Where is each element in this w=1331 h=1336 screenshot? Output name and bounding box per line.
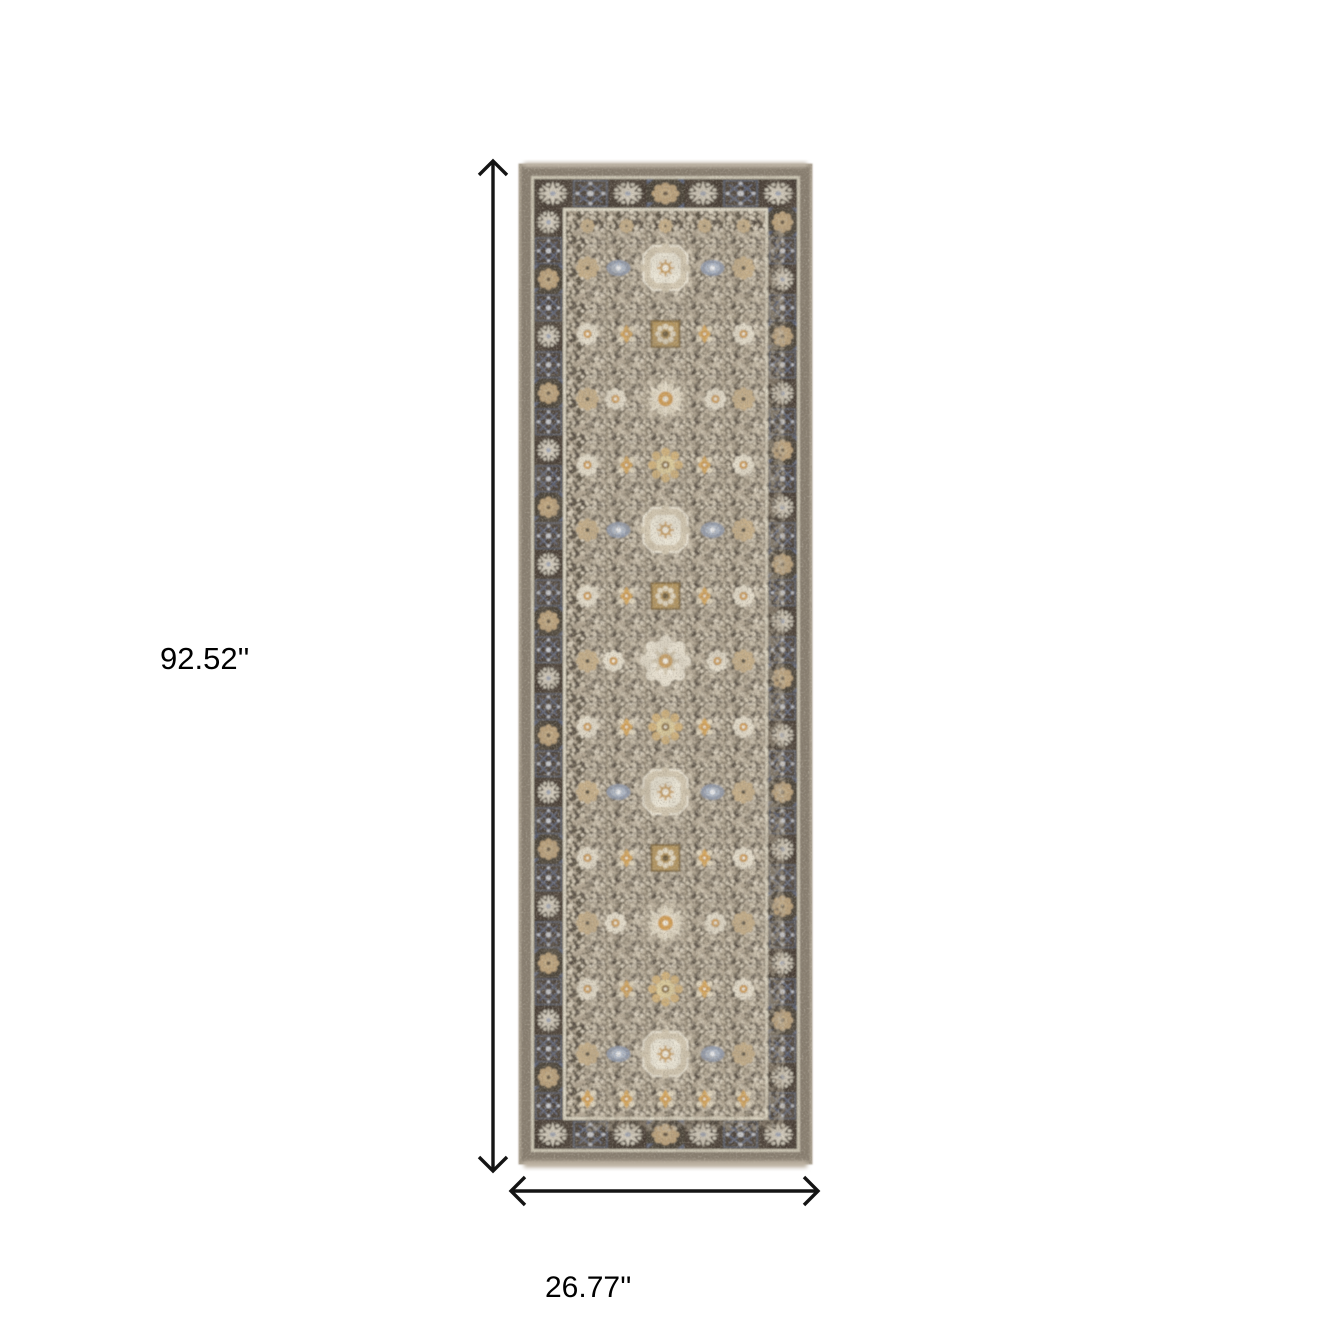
svg-text:92.52'': 92.52'' xyxy=(160,641,249,676)
svg-text:26.77'': 26.77'' xyxy=(545,1271,632,1304)
